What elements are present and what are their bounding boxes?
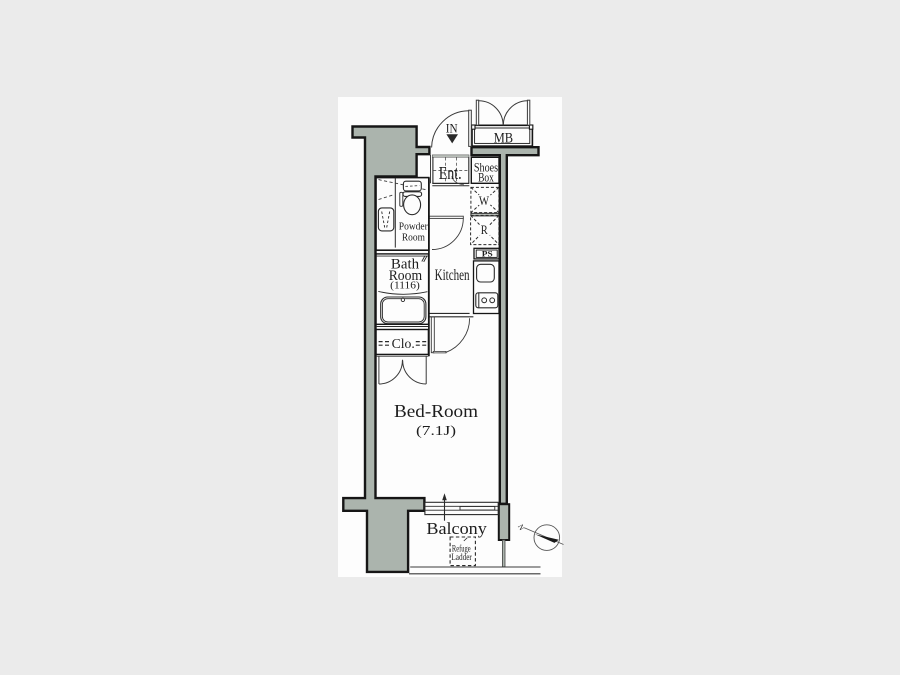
svg-text:MB: MB [494, 131, 513, 147]
svg-text:(7.1J): (7.1J) [416, 423, 456, 438]
svg-text:(1116): (1116) [390, 280, 420, 291]
svg-text:W: W [479, 193, 490, 208]
svg-text:R: R [481, 223, 489, 237]
svg-text:Clo.: Clo. [392, 337, 415, 352]
svg-text:PS: PS [482, 249, 493, 258]
svg-text:IN: IN [446, 121, 458, 136]
svg-text:Room: Room [402, 232, 425, 243]
svg-text:Ent.: Ent. [439, 163, 462, 183]
svg-text:Ladder: Ladder [451, 552, 472, 563]
svg-text:Powder: Powder [399, 221, 429, 232]
svg-text:Bed-Room: Bed-Room [394, 401, 478, 421]
svg-text:Kitchen: Kitchen [435, 267, 470, 284]
svg-text:Balcony: Balcony [426, 519, 487, 538]
svg-text:Box: Box [478, 170, 494, 184]
